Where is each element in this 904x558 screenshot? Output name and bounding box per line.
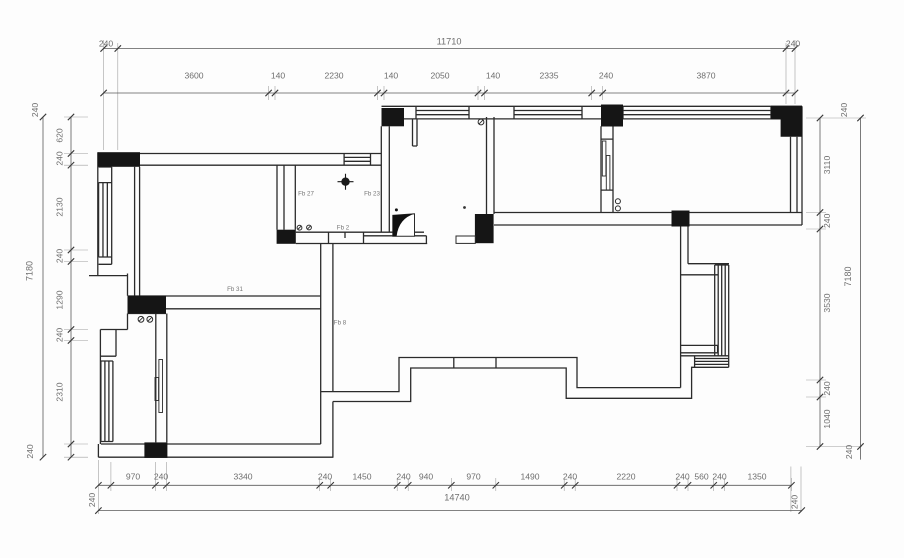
svg-text:240: 240	[30, 103, 40, 118]
svg-text:620: 620	[55, 128, 65, 143]
svg-text:970: 970	[126, 472, 141, 482]
svg-text:11710: 11710	[437, 37, 462, 47]
svg-text:240: 240	[154, 472, 169, 482]
svg-text:240: 240	[675, 472, 690, 482]
svg-text:Fb 23: Fb 23	[364, 191, 380, 198]
svg-text:240: 240	[55, 151, 65, 166]
svg-text:Fb 27: Fb 27	[298, 191, 314, 198]
svg-text:240: 240	[599, 71, 614, 81]
svg-text:2310: 2310	[55, 382, 65, 401]
svg-text:2050: 2050	[430, 71, 449, 81]
svg-text:240: 240	[99, 39, 114, 49]
svg-text:3870: 3870	[696, 71, 715, 81]
svg-text:2335: 2335	[539, 71, 558, 81]
svg-text:2130: 2130	[55, 197, 65, 216]
svg-text:Fb 8: Fb 8	[334, 320, 347, 327]
svg-text:2230: 2230	[324, 71, 343, 81]
svg-text:240: 240	[55, 328, 65, 343]
svg-text:240: 240	[822, 381, 832, 396]
svg-text:240: 240	[844, 445, 854, 460]
svg-text:Fb 31: Fb 31	[227, 286, 243, 293]
svg-text:240: 240	[790, 495, 800, 510]
svg-text:240: 240	[563, 472, 578, 482]
svg-text:3340: 3340	[233, 472, 252, 482]
svg-text:7180: 7180	[843, 266, 853, 286]
svg-text:240: 240	[55, 249, 65, 264]
svg-text:240: 240	[822, 213, 832, 228]
svg-text:1450: 1450	[352, 472, 371, 482]
svg-text:240: 240	[396, 472, 411, 482]
svg-text:14740: 14740	[444, 493, 470, 503]
svg-text:940: 940	[419, 472, 434, 482]
svg-text:1490: 1490	[520, 472, 539, 482]
svg-text:1350: 1350	[747, 472, 766, 482]
svg-text:Fb 2: Fb 2	[337, 225, 350, 232]
svg-text:7180: 7180	[25, 261, 35, 281]
svg-text:240: 240	[712, 472, 727, 482]
svg-text:3600: 3600	[184, 71, 203, 81]
svg-text:240: 240	[839, 103, 849, 118]
svg-text:1040: 1040	[822, 409, 832, 428]
svg-text:140: 140	[384, 71, 399, 81]
svg-text:1290: 1290	[55, 290, 65, 309]
svg-text:140: 140	[486, 71, 501, 81]
svg-text:3530: 3530	[822, 293, 832, 312]
svg-text:140: 140	[271, 71, 286, 81]
svg-text:240: 240	[87, 493, 97, 508]
svg-text:560: 560	[694, 472, 709, 482]
svg-text:240: 240	[25, 444, 35, 459]
svg-text:3110: 3110	[822, 156, 832, 175]
svg-text:970: 970	[466, 472, 481, 482]
svg-text:240: 240	[318, 472, 333, 482]
svg-text:2220: 2220	[616, 472, 635, 482]
svg-text:240: 240	[786, 39, 801, 49]
